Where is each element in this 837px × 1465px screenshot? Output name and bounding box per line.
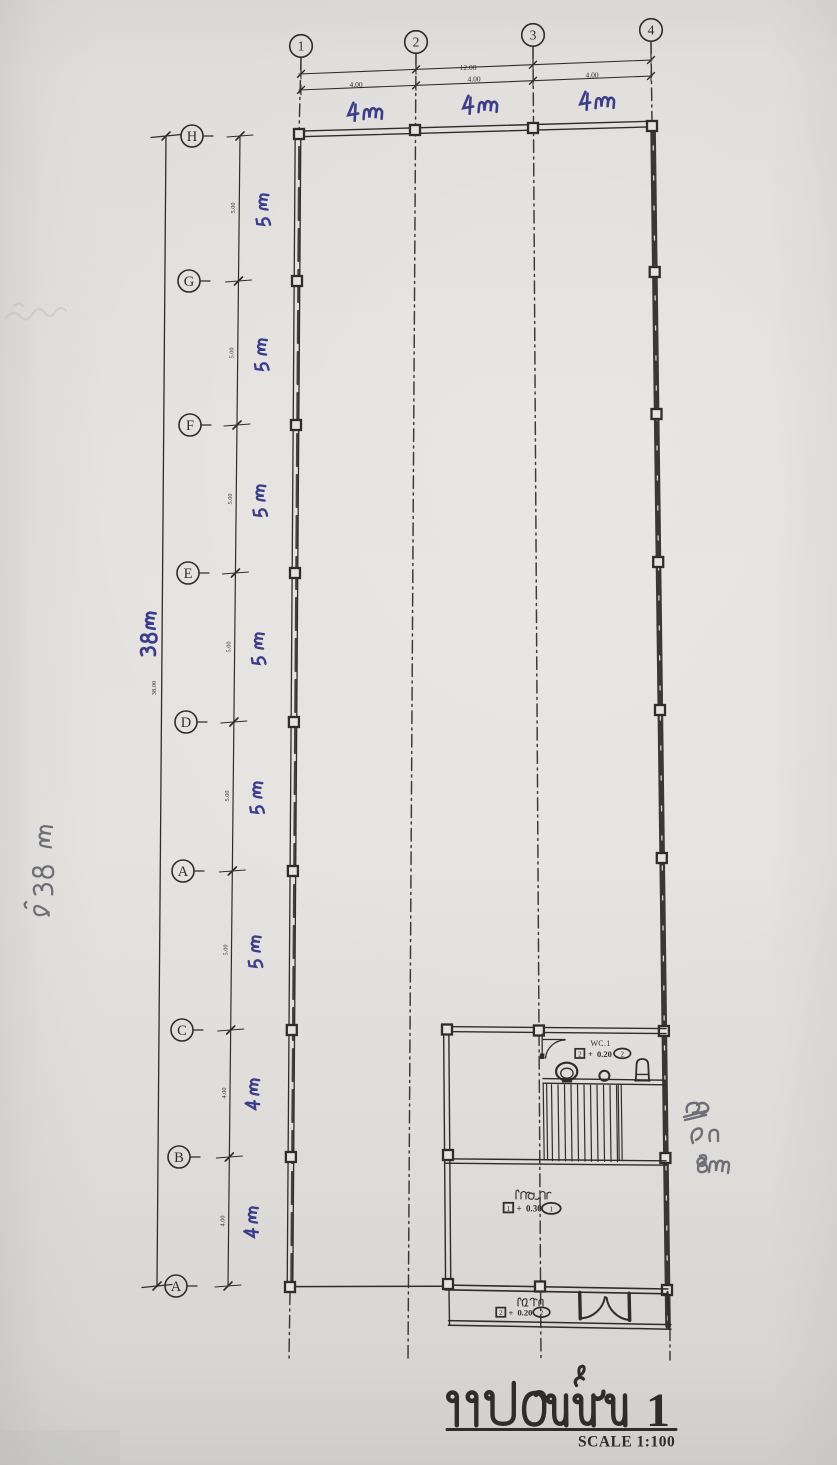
svg-text:1: 1	[549, 1204, 553, 1213]
svg-text:2: 2	[578, 1050, 582, 1058]
svg-text:4.00: 4.00	[585, 71, 598, 80]
svg-text:+: +	[588, 1049, 593, 1059]
svg-text:12.00: 12.00	[460, 63, 477, 72]
svg-text:H: H	[187, 129, 198, 145]
svg-text:G: G	[184, 274, 195, 290]
svg-text:4.00: 4.00	[349, 80, 362, 89]
svg-text:+: +	[517, 1204, 522, 1214]
svg-text:4.00: 4.00	[467, 75, 480, 84]
svg-text:2: 2	[540, 1309, 544, 1317]
svg-text:A: A	[171, 1279, 182, 1295]
svg-text:+: +	[509, 1308, 514, 1318]
svg-text:1: 1	[298, 39, 305, 54]
svg-text:WC.1: WC.1	[590, 1039, 610, 1048]
svg-text:5.00: 5.00	[230, 202, 237, 213]
svg-text:E: E	[184, 566, 193, 582]
svg-text:2: 2	[413, 35, 420, 50]
svg-text:2: 2	[621, 1050, 625, 1058]
svg-text:A: A	[178, 864, 189, 880]
svg-text:3: 3	[530, 28, 537, 43]
svg-text:5.00: 5.00	[224, 790, 231, 801]
svg-text:5.00: 5.00	[223, 944, 230, 955]
svg-text:D: D	[181, 715, 191, 731]
svg-text:1: 1	[507, 1205, 511, 1213]
svg-text:5.00: 5.00	[229, 347, 236, 358]
svg-text:F: F	[186, 418, 194, 434]
svg-text:0.20: 0.20	[518, 1308, 533, 1318]
svg-text:0.30: 0.30	[526, 1203, 542, 1213]
svg-text:4: 4	[648, 23, 655, 38]
svg-text:B: B	[174, 1150, 184, 1166]
svg-text:0.20: 0.20	[597, 1049, 612, 1059]
svg-text:5.00: 5.00	[227, 493, 234, 504]
svg-text:C: C	[177, 1023, 187, 1039]
svg-text:38.00: 38.00	[151, 681, 158, 696]
svg-text:4.00: 4.00	[220, 1215, 227, 1226]
svg-text:5.00: 5.00	[226, 641, 233, 652]
svg-text:4.00: 4.00	[221, 1087, 228, 1098]
svg-text:SCALE 1:100: SCALE 1:100	[578, 1434, 675, 1451]
svg-text:2: 2	[499, 1309, 503, 1317]
